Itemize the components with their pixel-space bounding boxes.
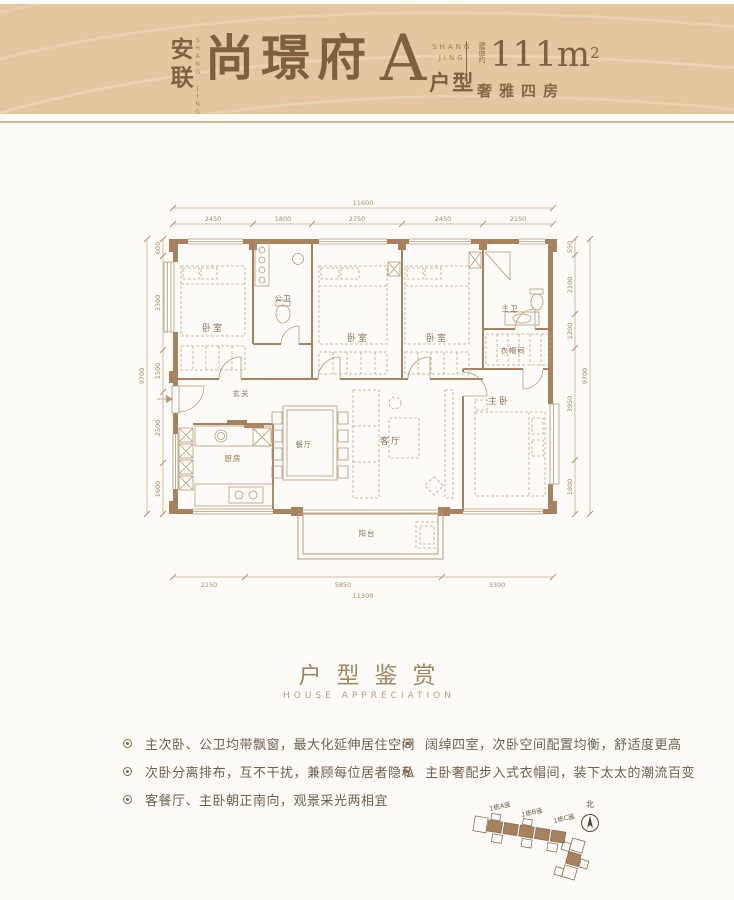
bullet-text: 次卧分离排布，互不干扰，兼顾每位居者隐私 (145, 762, 415, 781)
bullet-list-left: 主次卧、公卫均带飘窗，最大化延伸居住空间 次卧分离排布，互不干扰，兼顾每位居者隐… (123, 729, 415, 813)
page: 安联 SHANG JING 尚璟府 A SHANG JING 户型 建面约 11… (0, 0, 734, 900)
unit-letter: A (380, 27, 426, 97)
bullet-item: 主次卧、公卫均带飘窗，最大化延伸居住空间 (123, 729, 415, 757)
header-divider (466, 41, 467, 86)
bullet-item: 阔绰四室，次卧空间配置均衡，舒适度更高 (403, 729, 695, 757)
bullet-icon (123, 739, 132, 748)
building-label-a: 1栋A座 (488, 799, 512, 813)
header-rule (0, 121, 734, 123)
bullet-item: 主卧奢配步入式衣帽间，装下太太的潮流百变 (403, 757, 695, 785)
svg-text:5850: 5850 (335, 581, 352, 589)
svg-text:2450: 2450 (205, 215, 222, 223)
room-labels: 卧室 公卫 卧室 卧室 主卫 衣帽间 主卧 玄关 厨房 餐厅 客厅 阳台 (202, 294, 526, 538)
area-block: 建面约 111m2 奢雅四房 (477, 38, 600, 101)
svg-text:2150: 2150 (201, 581, 218, 589)
unit-en-line1: SHANG (429, 42, 475, 53)
unit-right-block: SHANG JING 户型 (429, 27, 475, 97)
room-label-bedroom-b: 卧室 (347, 332, 369, 344)
bullet-icon (123, 767, 132, 776)
svg-text:600: 600 (154, 242, 162, 254)
room-label-balcony: 阳台 (359, 528, 376, 538)
floor-plan: 11600 2450 1800 2750 2450 2150 9700 600 … (133, 194, 613, 606)
svg-text:1600: 1600 (154, 481, 162, 498)
svg-text:2450: 2450 (435, 215, 452, 223)
header-band: 安联 SHANG JING 尚璟府 A SHANG JING 户型 建面约 11… (0, 4, 734, 114)
svg-text:1500: 1500 (154, 363, 162, 380)
bullet-list-right: 阔绰四室，次卧空间配置均衡，舒适度更高 主卧奢配步入式衣帽间，装下太太的潮流百变 (403, 729, 695, 785)
svg-text:3300: 3300 (489, 581, 506, 589)
building-label-c: 1栋C座 (552, 811, 576, 825)
svg-text:9700: 9700 (581, 368, 589, 385)
brand-logo: 安联 SHANG JING (167, 37, 201, 114)
svg-text:2150: 2150 (510, 215, 527, 223)
room-label-master-bath: 主卫 (502, 303, 519, 313)
svg-text:11600: 11600 (353, 199, 374, 207)
site-plan: 1栋A座 1栋B座 1栋C座 北 (468, 793, 630, 893)
section-subtitle: HOUSE APPRECIATION (0, 691, 734, 701)
bullet-icon (403, 739, 412, 748)
room-label-living: 客厅 (380, 435, 402, 447)
brand-en-text: SHANG JING (194, 37, 201, 114)
unit-type-block: A SHANG JING 户型 (380, 27, 475, 97)
unit-en-line2: JING (429, 53, 475, 64)
room-label-dining: 餐厅 (296, 440, 313, 449)
dim-left: 9700 600 3300 1500 2500 1600 (138, 236, 166, 517)
svg-text:2500: 2500 (154, 420, 162, 437)
windows (164, 238, 559, 515)
dim-right: 550 2100 1200 3950 1800 9700 (566, 236, 593, 517)
bullet-icon (123, 795, 132, 804)
section-title: 户型鉴赏 (0, 656, 734, 690)
outer-walls (169, 239, 557, 516)
furniture (179, 242, 550, 506)
room-label-foyer: 玄关 (233, 388, 250, 398)
project-name: 尚璟府 (205, 34, 373, 83)
svg-text:550: 550 (566, 241, 574, 253)
interior-walls (178, 239, 551, 511)
svg-text:1200: 1200 (566, 323, 574, 340)
area-tagline: 奢雅四房 (477, 80, 600, 101)
unit-suffix: 户型 (429, 67, 475, 97)
svg-text:1800: 1800 (275, 215, 292, 223)
bullet-item: 客餐厅、主卧朝正南向，观景采光两相宜 (123, 785, 415, 813)
svg-text:3300: 3300 (154, 295, 162, 312)
room-label-kitchen: 厨房 (225, 453, 242, 463)
bullet-text: 主次卧、公卫均带飘窗，最大化延伸居住空间 (145, 734, 415, 753)
brand-cn-text: 安联 (167, 37, 191, 114)
svg-text:9700: 9700 (138, 368, 146, 385)
bullet-text: 客餐厅、主卧朝正南向，观景采光两相宜 (145, 790, 388, 809)
room-label-bedroom-c: 卧室 (426, 332, 448, 344)
bullet-text: 主卧奢配步入式衣帽间，装下太太的潮流百变 (425, 762, 695, 781)
area-prefix: 建面约 (477, 42, 486, 63)
north-label: 北 (586, 800, 594, 809)
svg-text:3950: 3950 (566, 396, 574, 413)
room-label-master-bedroom: 主卧 (488, 395, 510, 407)
room-label-guest-bath: 公卫 (275, 294, 292, 303)
area-value: 111m2 (490, 38, 600, 73)
bullet-text: 阔绰四室，次卧空间配置均衡，舒适度更高 (425, 734, 682, 753)
svg-text:2750: 2750 (349, 215, 366, 223)
bullet-item: 次卧分离排布，互不干扰，兼顾每位居者隐私 (123, 757, 415, 785)
bullet-icon (403, 767, 412, 776)
svg-text:1800: 1800 (566, 479, 574, 496)
svg-text:11300: 11300 (353, 592, 374, 600)
dim-top: 11600 2450 1800 2750 2450 2150 (170, 199, 556, 227)
area-superscript: 2 (590, 44, 600, 62)
room-label-cloakroom: 衣帽间 (500, 345, 526, 355)
compass-icon: 北 (582, 800, 599, 832)
svg-text:2100: 2100 (566, 277, 574, 294)
room-label-bedroom-a: 卧室 (202, 322, 224, 334)
dim-bottom: 2150 5850 3300 11300 (170, 574, 556, 600)
building-label-b: 1栋B座 (520, 805, 544, 819)
